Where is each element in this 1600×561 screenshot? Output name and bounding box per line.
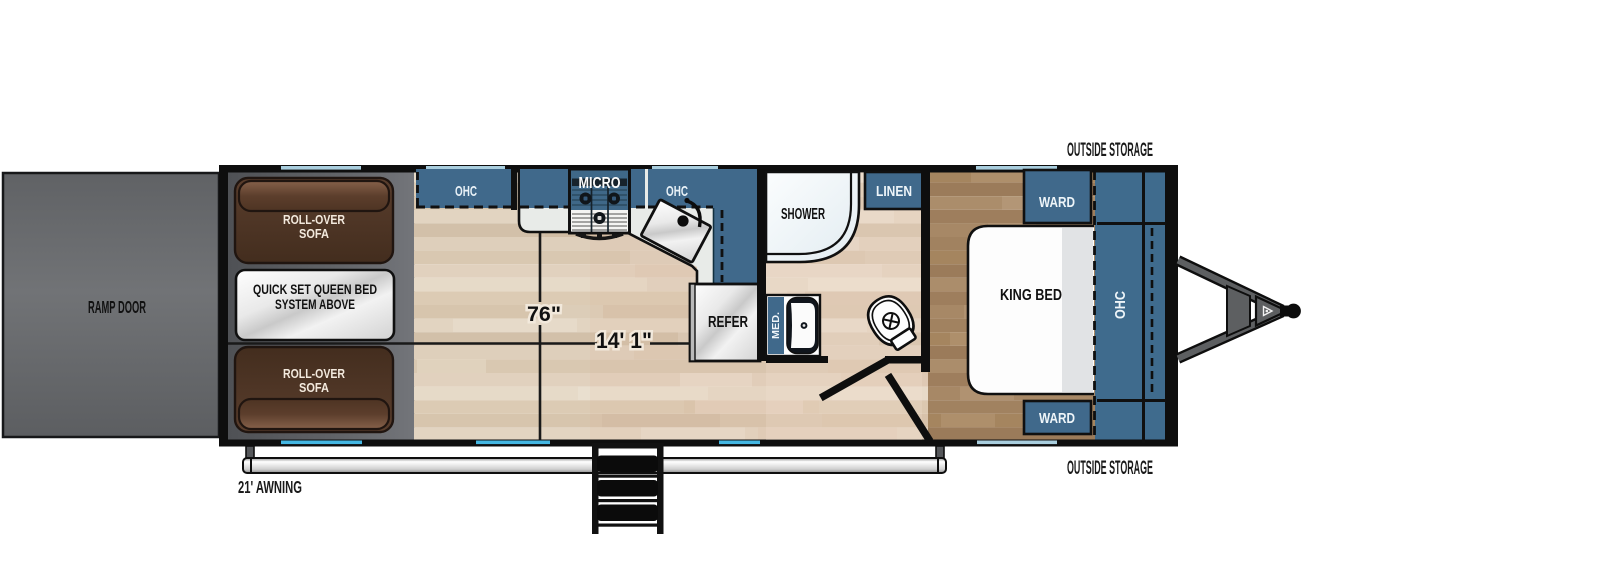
svg-text:MED.: MED. <box>770 312 782 339</box>
svg-text:76": 76" <box>527 303 561 326</box>
svg-text:OUTSIDE STORAGE: OUTSIDE STORAGE <box>1067 140 1153 161</box>
svg-text:MICRO: MICRO <box>579 175 621 192</box>
svg-text:OHC: OHC <box>666 183 688 200</box>
svg-text:REFER: REFER <box>708 314 748 331</box>
svg-text:OHC: OHC <box>1113 291 1129 319</box>
svg-text:SOFA: SOFA <box>299 226 330 241</box>
svg-text:ROLL-OVER: ROLL-OVER <box>283 366 345 381</box>
svg-text:ROLL-OVER: ROLL-OVER <box>283 212 345 227</box>
svg-text:SYSTEM ABOVE: SYSTEM ABOVE <box>275 297 355 312</box>
svg-text:LINEN: LINEN <box>876 184 912 200</box>
svg-text:SHOWER: SHOWER <box>781 206 825 223</box>
svg-text:RAMP DOOR: RAMP DOOR <box>88 297 146 317</box>
svg-text:21' AWNING: 21' AWNING <box>238 477 302 497</box>
svg-text:QUICK SET QUEEN BED: QUICK SET QUEEN BED <box>253 282 377 297</box>
svg-text:SOFA: SOFA <box>299 380 330 395</box>
svg-text:OHC: OHC <box>455 183 477 200</box>
svg-text:WARD: WARD <box>1039 411 1075 427</box>
svg-text:WARD: WARD <box>1039 195 1075 211</box>
svg-text:OUTSIDE STORAGE: OUTSIDE STORAGE <box>1067 458 1153 479</box>
svg-text:KING BED: KING BED <box>1000 287 1062 304</box>
svg-text:14' 1": 14' 1" <box>596 328 652 353</box>
